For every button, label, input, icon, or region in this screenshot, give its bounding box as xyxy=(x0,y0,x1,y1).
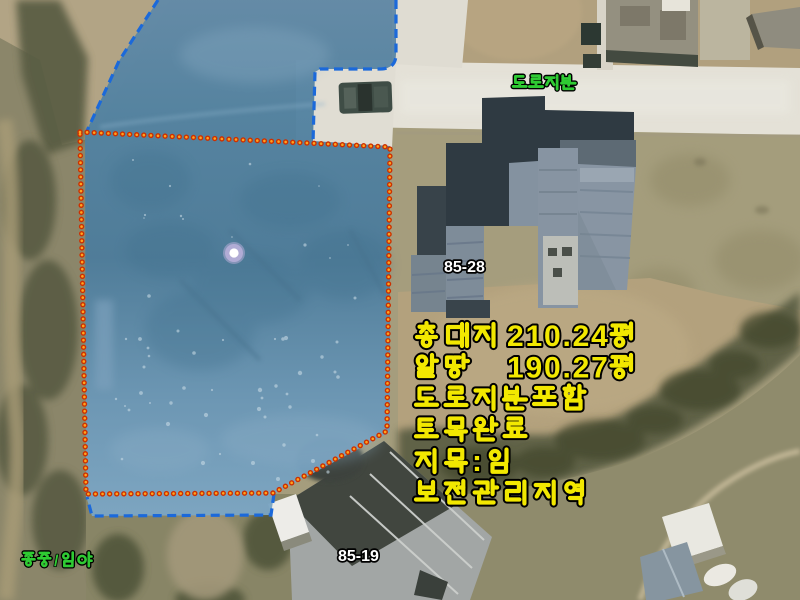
svg-text:85-28: 85-28 xyxy=(444,259,485,276)
svg-text:210.24: 210.24 xyxy=(507,320,610,353)
svg-text:85-19: 85-19 xyxy=(338,548,379,565)
svg-text::: : xyxy=(472,445,482,478)
svg-text:/: / xyxy=(54,553,59,570)
svg-text:190.27: 190.27 xyxy=(507,352,610,385)
